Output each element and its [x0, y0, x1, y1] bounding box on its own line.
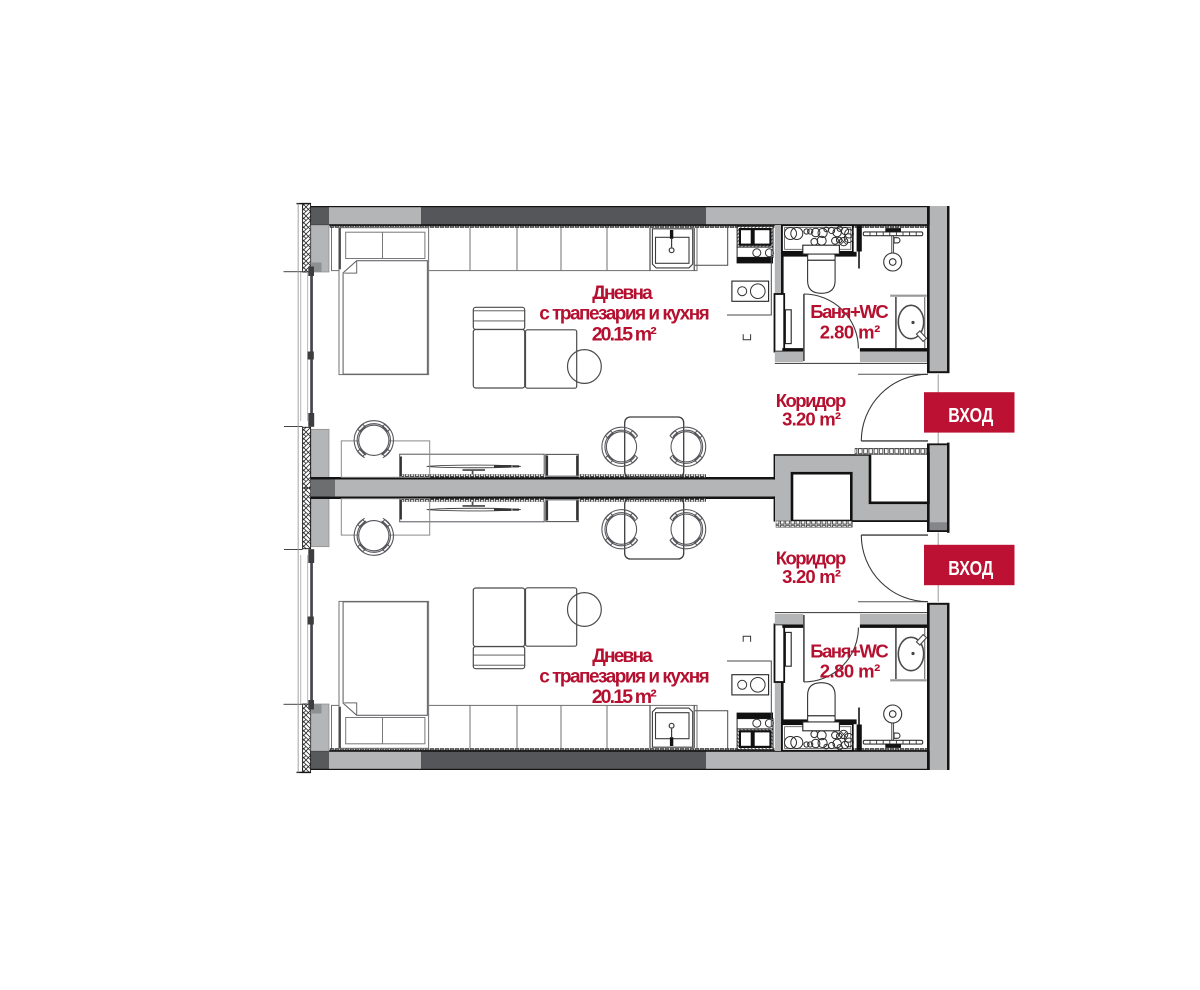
svg-text:3.20 m²: 3.20 m² [782, 566, 841, 587]
svg-text:2.80 m²: 2.80 m² [820, 661, 881, 682]
svg-text:с трапезария и кухня: с трапезария и кухня [539, 304, 710, 325]
svg-text:ВХОД: ВХОД [948, 557, 993, 580]
svg-text:Дневна: Дневна [592, 283, 653, 304]
svg-text:ВХОД: ВХОД [948, 404, 993, 427]
svg-text:20.15 m²: 20.15 m² [592, 324, 658, 346]
svg-text:3.20 m²: 3.20 m² [782, 408, 841, 429]
svg-text:с трапезария и кухня: с трапезария и кухня [539, 667, 710, 688]
svg-text:20.15 m²: 20.15 m² [592, 686, 658, 708]
svg-text:Баня+WC: Баня+WC [810, 641, 889, 662]
svg-text:Дневна: Дневна [592, 646, 653, 667]
svg-text:2.80 m²: 2.80 m² [820, 321, 881, 342]
svg-text:Баня+WC: Баня+WC [810, 301, 889, 322]
